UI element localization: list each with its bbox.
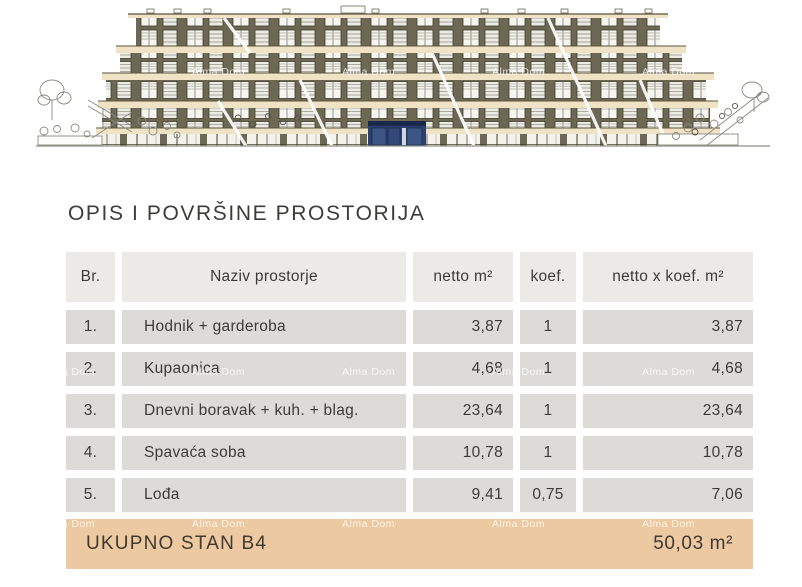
netto-koef-cell: 10,78	[583, 436, 753, 470]
row-number-cell: 1.	[66, 310, 115, 344]
row-number-cell: 2.	[66, 352, 115, 386]
total-bar: UKUPNO STAN B4 50,03 m²	[66, 519, 753, 569]
netto-koef-cell: 7,06	[583, 478, 753, 512]
header-br: Br.	[66, 252, 115, 302]
highlighted-unit-b4	[368, 121, 426, 146]
room-name-cell: Lođa	[122, 478, 406, 512]
row-number-cell: 5.	[66, 478, 115, 512]
room-name-cell: Spavaća soba	[122, 436, 406, 470]
netto-area-cell: 9,41	[413, 478, 513, 512]
header-netto: netto m²	[413, 252, 513, 302]
koef-cell: 1	[520, 310, 576, 344]
netto-area-cell: 23,64	[413, 394, 513, 428]
koef-cell: 0,75	[520, 478, 576, 512]
koef-cell: 1	[520, 394, 576, 428]
room-name-cell: Kupaonica	[122, 352, 406, 386]
row-number-cell: 4.	[66, 436, 115, 470]
page: OPIS I POVRŠINE PROSTORIJA Br. Naziv pro…	[0, 0, 802, 587]
netto-koef-cell: 3,87	[583, 310, 753, 344]
koef-cell: 1	[520, 352, 576, 386]
netto-koef-cell: 23,64	[583, 394, 753, 428]
netto-area-cell: 10,78	[413, 436, 513, 470]
header-naziv: Naziv prostorje	[122, 252, 406, 302]
room-name-cell: Dnevni boravak + kuh. + blag.	[122, 394, 406, 428]
total-value: 50,03 m²	[653, 533, 733, 555]
building-elevation-drawing	[0, 0, 802, 175]
netto-koef-cell: 4,68	[583, 352, 753, 386]
koef-cell: 1	[520, 436, 576, 470]
netto-area-cell: 3,87	[413, 310, 513, 344]
room-name-cell: Hodnik + garderoba	[122, 310, 406, 344]
total-label: UKUPNO STAN B4	[86, 533, 267, 555]
row-number-cell: 3.	[66, 394, 115, 428]
page-title: OPIS I POVRŠINE PROSTORIJA	[68, 202, 425, 226]
rooms-table: Br. Naziv prostorje netto m² koef. netto…	[66, 252, 753, 512]
header-koef: koef.	[520, 252, 576, 302]
roof-vents-icon	[147, 6, 652, 13]
netto-area-cell: 4,68	[413, 352, 513, 386]
header-netto-koef: netto x koef. m²	[583, 252, 753, 302]
